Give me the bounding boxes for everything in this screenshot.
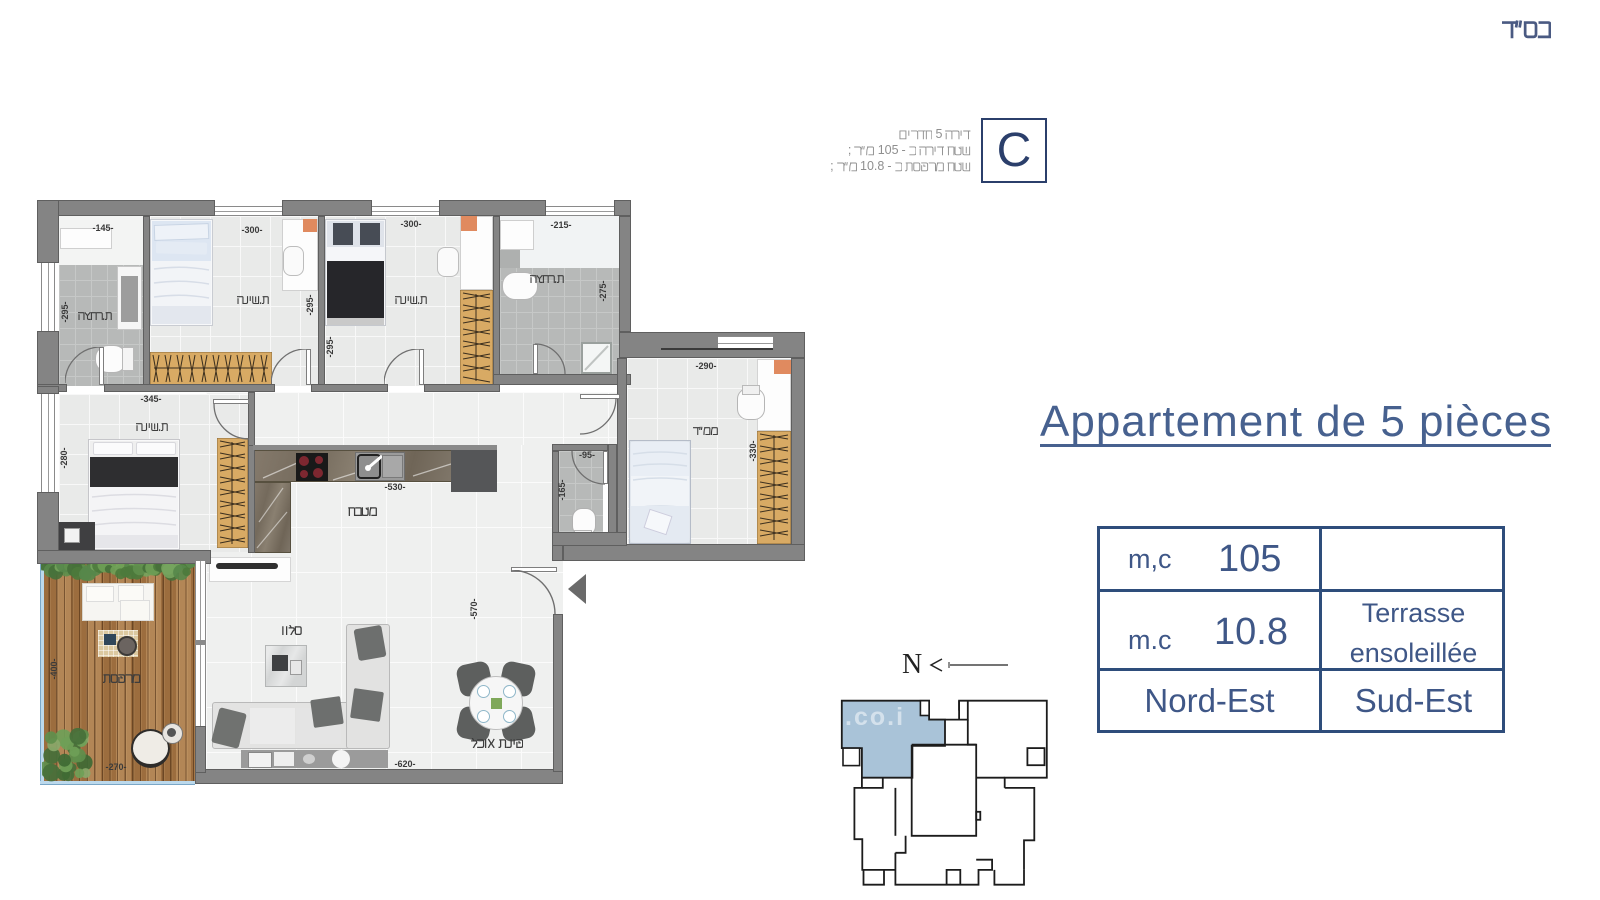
svg-text:.co.i: .co.i xyxy=(845,703,905,731)
